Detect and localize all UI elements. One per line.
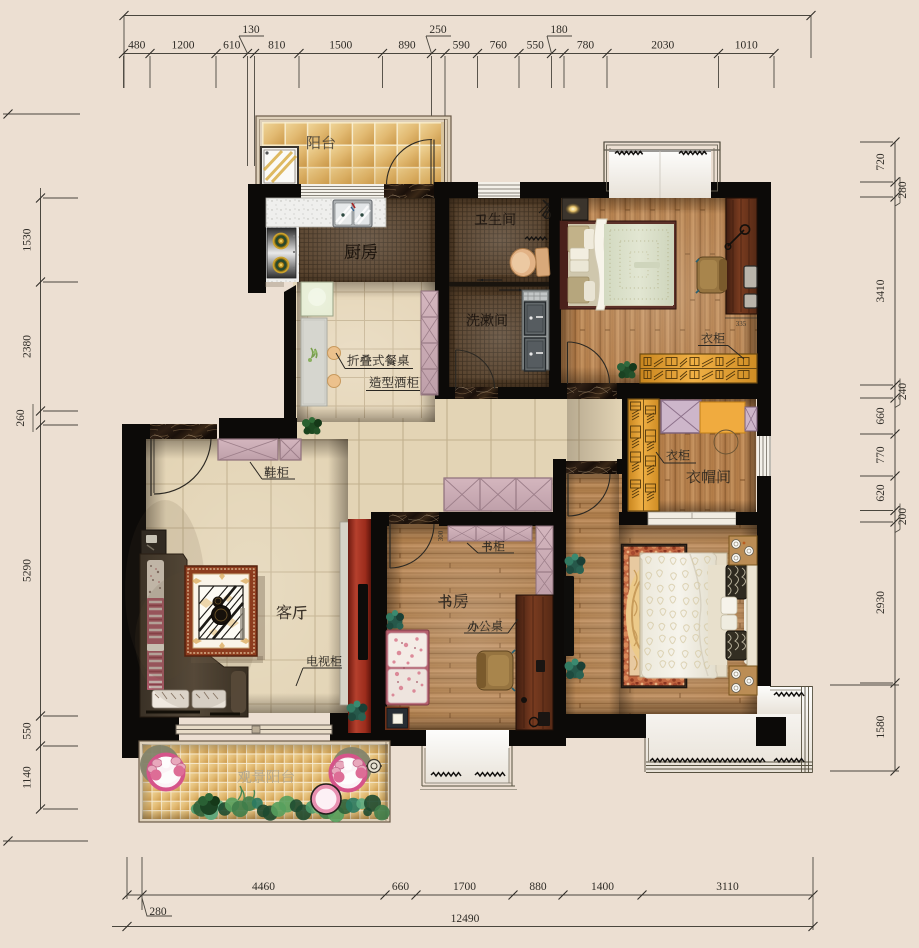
svg-text:780: 780: [577, 40, 595, 52]
svg-text:3410: 3410: [875, 279, 887, 302]
svg-text:335: 335: [736, 320, 747, 328]
svg-text:12490: 12490: [451, 913, 480, 925]
svg-text:1200: 1200: [172, 40, 195, 52]
svg-text:1140: 1140: [22, 766, 34, 789]
svg-text:240: 240: [897, 383, 909, 401]
svg-text:250: 250: [429, 24, 447, 36]
svg-text:810: 810: [268, 40, 286, 52]
svg-text:1010: 1010: [735, 40, 758, 52]
svg-text:4460: 4460: [252, 881, 275, 893]
svg-text:3110: 3110: [716, 881, 739, 893]
svg-text:2380: 2380: [22, 335, 34, 358]
svg-text:1580: 1580: [875, 715, 887, 738]
svg-text:480: 480: [128, 40, 146, 52]
svg-text:1500: 1500: [329, 40, 352, 52]
svg-text:180: 180: [550, 24, 568, 36]
svg-text:880: 880: [529, 881, 547, 893]
svg-text:280: 280: [897, 181, 909, 199]
svg-text:770: 770: [875, 446, 887, 464]
svg-text:550: 550: [22, 722, 34, 740]
svg-text:550: 550: [527, 40, 545, 52]
svg-text:610: 610: [223, 40, 241, 52]
svg-text:2930: 2930: [875, 591, 887, 614]
svg-text:300: 300: [437, 530, 445, 541]
svg-text:5290: 5290: [22, 559, 34, 582]
svg-text:760: 760: [490, 40, 508, 52]
svg-text:590: 590: [453, 40, 471, 52]
svg-text:1530: 1530: [22, 228, 34, 251]
svg-text:620: 620: [875, 484, 887, 502]
svg-text:660: 660: [392, 881, 410, 893]
svg-text:1700: 1700: [453, 881, 476, 893]
svg-text:890: 890: [398, 40, 416, 52]
svg-text:200: 200: [897, 508, 909, 526]
svg-text:720: 720: [875, 153, 887, 171]
svg-text:260: 260: [15, 409, 27, 427]
svg-text:1400: 1400: [591, 881, 614, 893]
svg-text:130: 130: [242, 24, 260, 36]
svg-text:660: 660: [875, 407, 887, 425]
svg-text:2030: 2030: [651, 40, 674, 52]
